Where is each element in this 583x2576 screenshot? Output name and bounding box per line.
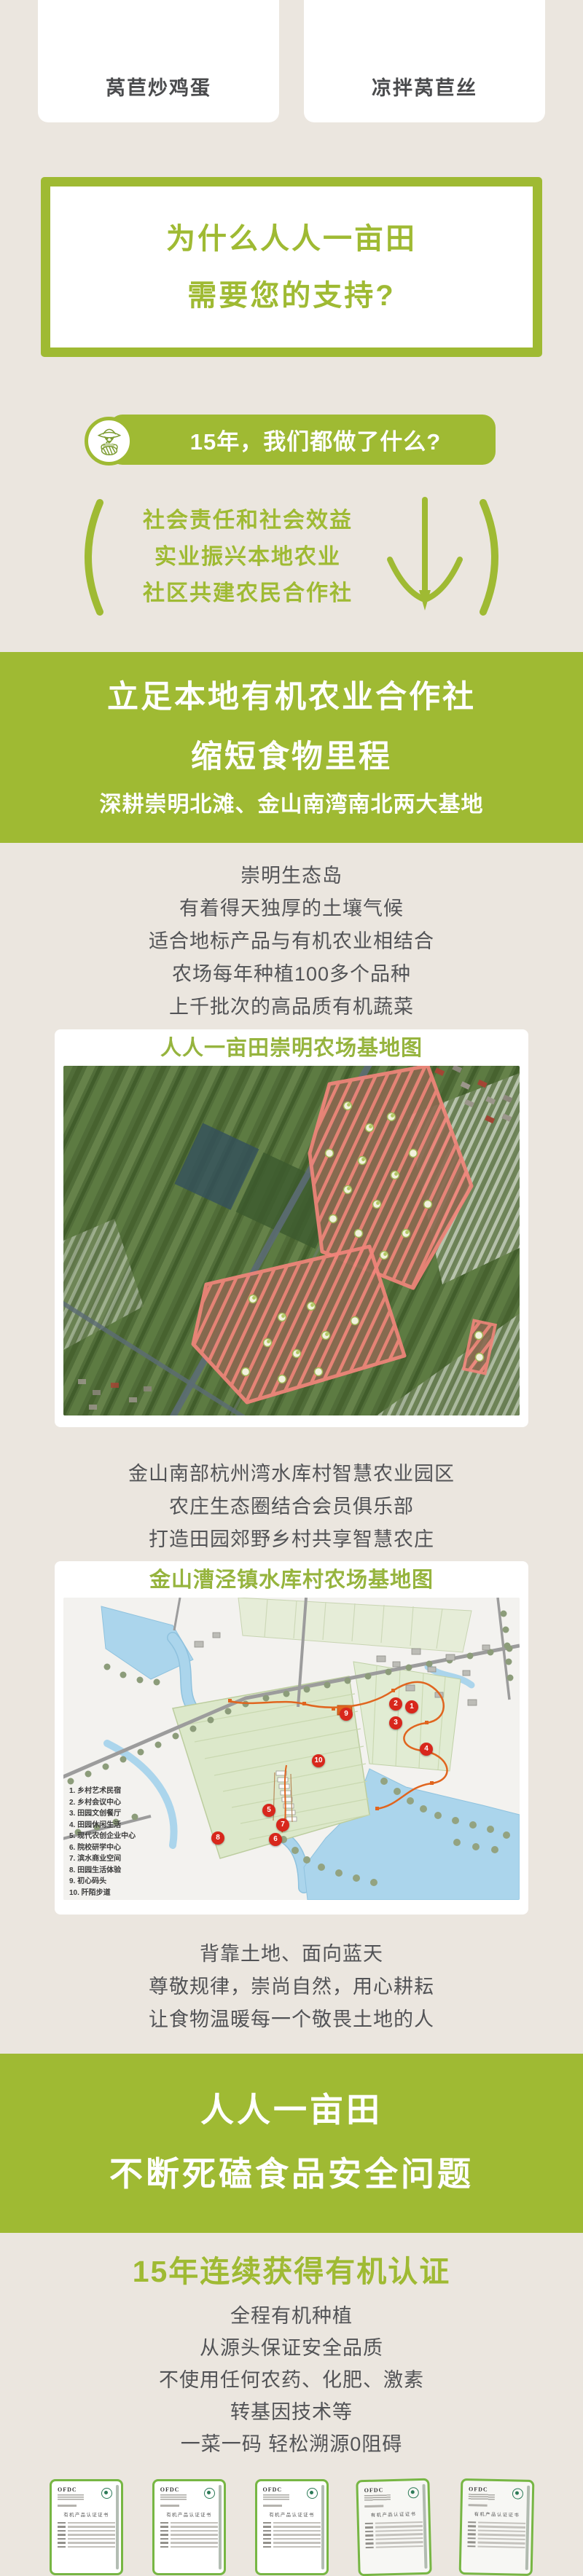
pledge-line: 社区共建农民合作社 (102, 576, 394, 612)
motto-line: 尊敬规律，崇尚自然，用心耕耘 (0, 1971, 583, 2003)
chongming-line: 崇明生态岛 (0, 860, 583, 892)
jinshan-line: 金山南部杭州湾水库村智慧农业园区 (0, 1458, 583, 1491)
map-marker: 4 (420, 1743, 433, 1756)
pledge-line: 实业振兴本地农业 (102, 539, 394, 576)
certificate-title: 有机产品认证证书 (470, 2510, 523, 2518)
legend-item: 6. 院校研学中心 (69, 1842, 136, 1854)
chongming-map-card: 人人一亩田崇明农场基地图 (55, 1029, 528, 1427)
organic-line: 全程有机种植 (0, 2300, 583, 2332)
chongming-text-block: 崇明生态岛 有着得天独厚的土壤气候 适合地标产品与有机农业相结合 农场每年种植1… (0, 860, 583, 1024)
legend-item: 4. 田园休闲生活 (69, 1820, 136, 1831)
map-marker: 8 (211, 1831, 224, 1845)
intro-banner-label: 15年，我们都做了什么? (164, 423, 441, 456)
certificate-title: 有机产品认证证书 (265, 2511, 318, 2518)
legend-item: 9. 初心码头 (69, 1876, 136, 1888)
support-question-line2: 需要您的支持? (187, 267, 395, 324)
organic-seal-icon (408, 2487, 419, 2498)
certificate-thumbnail: OFDC 有机产品认证证书 (255, 2479, 329, 2575)
legend-item: 2. 乡村会议中心 (69, 1797, 136, 1809)
certificate-row: OFDC 有机产品认证证书 OFDC 有机产品认证证书 (0, 2479, 583, 2575)
chongming-line: 上千批次的高品质有机蔬菜 (0, 991, 583, 1024)
chongming-line: 适合地标产品与有机农业相结合 (0, 925, 583, 958)
organic-line: 转基因技术等 (0, 2396, 583, 2428)
organic-seal-icon (101, 2488, 112, 2499)
dish-label: 凉拌莴苣丝 (304, 72, 545, 101)
motto-line: 背靠土地、面向蓝天 (0, 1938, 583, 1971)
legend-item: 1. 乡村艺术民宿 (69, 1786, 136, 1797)
coop-banner: 立足本地有机农业合作社 缩短食物里程 深耕崇明北滩、金山南湾南北两大基地 (0, 652, 583, 843)
chongming-map-title: 人人一亩田崇明农场基地图 (63, 1037, 520, 1060)
map-marker: 9 (340, 1708, 353, 1721)
organic-line: 不使用任何农药、化肥、激素 (0, 2364, 583, 2396)
safety-banner-line1: 人人一亩田 (0, 2092, 583, 2128)
farmer-icon (85, 417, 133, 466)
safety-banner-line2: 不断死磕食品安全问题 (0, 2156, 583, 2192)
chongming-line: 农场每年种植100多个品种 (0, 958, 583, 991)
certificate-title: 有机产品认证证书 (60, 2511, 113, 2518)
map-legend: 1. 乡村艺术民宿 2. 乡村会议中心 3. 田园文创餐厅 4. 田园休闲生活 … (69, 1786, 136, 1898)
certificate-title: 有机产品认证证书 (367, 2510, 420, 2518)
support-question-box: 为什么人人一亩田 需要您的支持? (41, 177, 542, 357)
coop-banner-line1: 立足本地有机农业合作社 (0, 680, 583, 715)
certificate-title: 有机产品认证证书 (163, 2511, 216, 2518)
map-marker: 10 (312, 1754, 325, 1767)
organic-seal-icon (512, 2488, 523, 2499)
certificate-thumbnail: OFDC 有机产品认证证书 (356, 2478, 432, 2576)
map-marker: 5 (262, 1804, 275, 1817)
map-marker: 2 (389, 1697, 402, 1711)
dish-card-coldsalad: 凉拌莴苣丝 (304, 0, 545, 122)
organic-section-title: 15年连续获得有机认证 (0, 2253, 583, 2290)
intro-banner: 15年，我们都做了什么? (109, 415, 496, 465)
jinshan-line: 打造田园郊野乡村共享智慧农庄 (0, 1523, 583, 1556)
certificate-thumbnail: OFDC 有机产品认证证书 (152, 2479, 226, 2575)
certificate-thumbnail: OFDC 有机产品认证证书 (50, 2479, 123, 2575)
dish-card-stirfry: 莴苣炒鸡蛋 (38, 0, 279, 122)
organic-line: 从源头保证安全品质 (0, 2332, 583, 2364)
jinshan-map-card: 金山漕泾镇水库村农场基地图 (55, 1561, 528, 1915)
pledge-lines: 社会责任和社会效益 实业振兴本地农业 社区共建农民合作社 (102, 503, 394, 612)
dish-card-row: 莴苣炒鸡蛋 凉拌莴苣丝 (0, 0, 583, 122)
organic-seal-icon (204, 2488, 215, 2499)
organic-line: 一菜一码 轻松溯源0阻碍 (0, 2428, 583, 2460)
jinshan-line: 农庄生态圈结合会员俱乐部 (0, 1491, 583, 1523)
legend-item: 3. 田园文创餐厅 (69, 1808, 136, 1820)
motto-block: 背靠土地、面向蓝天 尊敬规律，崇尚自然，用心耕耘 让食物温暖每一个敬畏土地的人 (0, 1938, 583, 2036)
chongming-aerial-map (63, 1066, 520, 1415)
safety-banner: 人人一亩田 不断死磕食品安全问题 (0, 2054, 583, 2233)
map-marker: 1 (405, 1700, 418, 1713)
coop-banner-subtitle: 深耕崇明北滩、金山南湾南北两大基地 (0, 792, 583, 818)
organic-seal-icon (307, 2488, 318, 2499)
support-question-line1: 为什么人人一亩田 (166, 211, 417, 267)
pledge-line: 社会责任和社会效益 (102, 503, 394, 539)
chongming-line: 有着得天独厚的土壤气候 (0, 892, 583, 925)
map-marker: 3 (389, 1716, 402, 1729)
dish-label: 莴苣炒鸡蛋 (38, 72, 279, 101)
motto-line: 让食物温暖每一个敬畏土地的人 (0, 2003, 583, 2036)
promo-page: { "theme": { "green": "#9fba33", "beige"… (0, 0, 583, 2534)
legend-item: 8. 田园生活体验 (69, 1865, 136, 1877)
legend-item: 7. 滨水商业空间 (69, 1853, 136, 1865)
legend-item: 5. 现代农创企业中心 (69, 1831, 136, 1842)
legend-item: 10. 阡陌步道 (69, 1888, 136, 1899)
map-marker: 6 (269, 1833, 282, 1846)
coop-banner-line2: 缩短食物里程 (0, 739, 583, 774)
pledge-block: 社会责任和社会效益 实业振兴本地农业 社区共建农民合作社 (0, 497, 583, 624)
organic-text-block: 全程有机种植 从源头保证安全品质 不使用任何农药、化肥、激素 转基因技术等 一菜… (0, 2300, 583, 2460)
jinshan-text-block: 金山南部杭州湾水库村智慧农业园区 农庄生态圈结合会员俱乐部 打造田园郊野乡村共享… (0, 1458, 583, 1556)
certificate-thumbnail: OFDC 有机产品认证证书 (459, 2478, 535, 2576)
jinshan-map-title: 金山漕泾镇水库村农场基地图 (63, 1568, 520, 1592)
jinshan-plan-map: 1. 乡村艺术民宿 2. 乡村会议中心 3. 田园文创餐厅 4. 田园休闲生活 … (63, 1598, 520, 1900)
map-marker: 7 (276, 1818, 289, 1831)
intro-banner-row: 15年，我们都做了什么? (0, 415, 583, 465)
